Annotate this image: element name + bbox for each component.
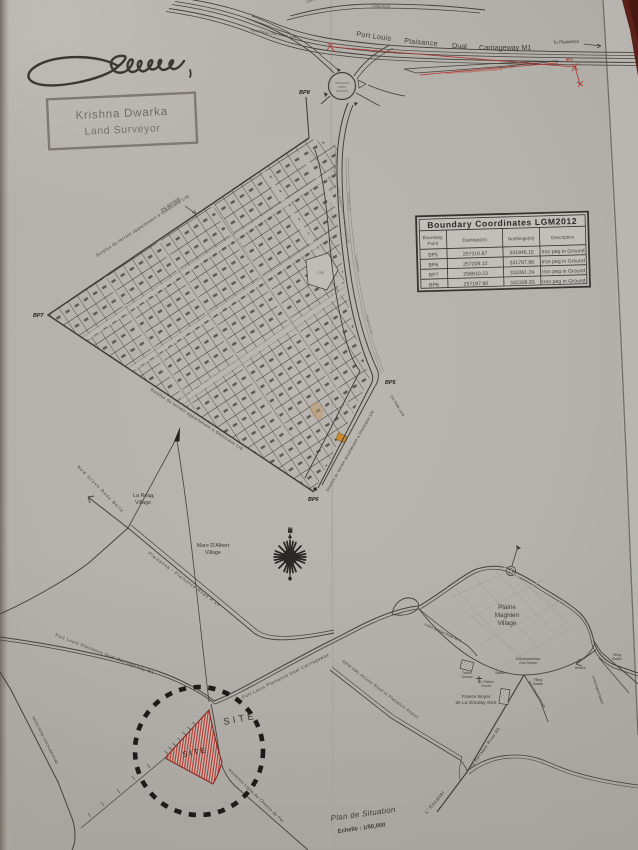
svg-text:9.0: 9.0 (149, 495, 154, 499)
svg-text:Village: Village (205, 550, 221, 556)
svg-text:Iron peg in Ground: Iron peg in Ground (541, 248, 585, 255)
svg-text:257310.67: 257310.67 (463, 251, 488, 258)
svg-text:Plaine: Plaine (498, 604, 516, 611)
svg-text:BP7: BP7 (33, 313, 44, 319)
svg-text:BP5: BP5 (385, 380, 396, 386)
svg-text:C38: C38 (317, 271, 324, 275)
svg-text:Govt School: Govt School (519, 661, 537, 665)
svg-text:Northings(m): Northings(m) (508, 236, 535, 242)
svg-text:Boundary: Boundary (423, 235, 443, 241)
svg-text:BP7: BP7 (429, 272, 439, 278)
svg-text:Iron peg in Ground: Iron peg in Ground (542, 278, 586, 285)
svg-text:Village: Village (135, 500, 151, 506)
svg-text:de La Giroday SSS: de La Giroday SSS (455, 700, 496, 706)
svg-text:Church: Church (481, 684, 492, 688)
svg-text:332308.93: 332308.93 (510, 280, 535, 287)
svg-text:BP9: BP9 (566, 57, 573, 62)
svg-text:257208.12: 257208.12 (463, 261, 488, 268)
svg-text:N: N (288, 527, 292, 533)
svg-text:Dual: Dual (452, 41, 467, 51)
svg-text:Iron peg in Ground: Iron peg in Ground (542, 268, 586, 275)
svg-text:Ground: Ground (462, 675, 473, 679)
svg-text:256810.23: 256810.23 (463, 271, 488, 278)
svg-text:Station: Station (533, 682, 543, 686)
svg-text:Camp Road: Camp Road (372, 4, 390, 8)
svg-text:Eastings(m): Eastings(m) (462, 237, 487, 243)
svg-text:Mare D'Albert: Mare D'Albert (197, 543, 230, 549)
svg-text:Iron peg in Ground: Iron peg in Ground (542, 258, 586, 265)
svg-text:Brisees: Brisees (575, 666, 586, 670)
svg-text:257197.90: 257197.90 (464, 281, 489, 288)
svg-text:BP8: BP8 (429, 282, 439, 288)
svg-text:332061.24: 332061.24 (510, 270, 535, 277)
svg-text:France Boyer: France Boyer (462, 694, 491, 700)
svg-text:Station: Station (495, 671, 505, 675)
svg-text:331945.15: 331945.15 (509, 250, 534, 257)
svg-text:BP6: BP6 (428, 262, 438, 268)
svg-text:BP5: BP5 (428, 252, 438, 258)
svg-text:Point: Point (427, 241, 438, 246)
svg-text:Description: Description (551, 234, 575, 240)
svg-text:Magnien: Magnien (495, 612, 520, 619)
svg-text:Station: Station (612, 657, 622, 661)
svg-text:Village: Village (497, 620, 517, 627)
svg-text:331787.88: 331787.88 (509, 260, 534, 267)
svg-text:BP6: BP6 (308, 497, 319, 503)
svg-text:BP8: BP8 (299, 90, 311, 96)
svg-text:Carriageway M1: Carriageway M1 (479, 43, 531, 52)
